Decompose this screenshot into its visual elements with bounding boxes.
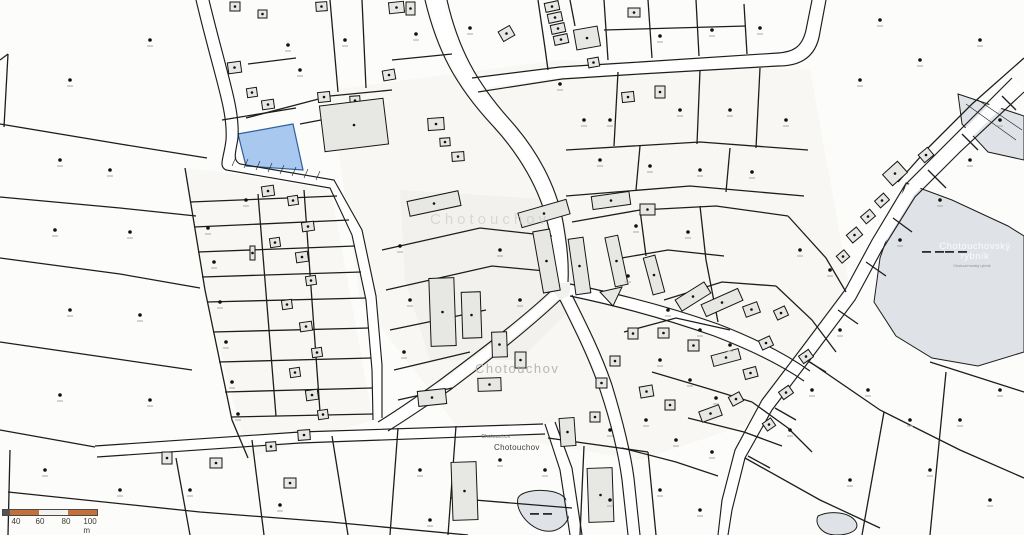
map-canvas[interactable] — [0, 0, 1024, 535]
cadastral-map-view: Chotouchov Chotouchov Chotouchov Chotouc… — [0, 0, 1024, 535]
